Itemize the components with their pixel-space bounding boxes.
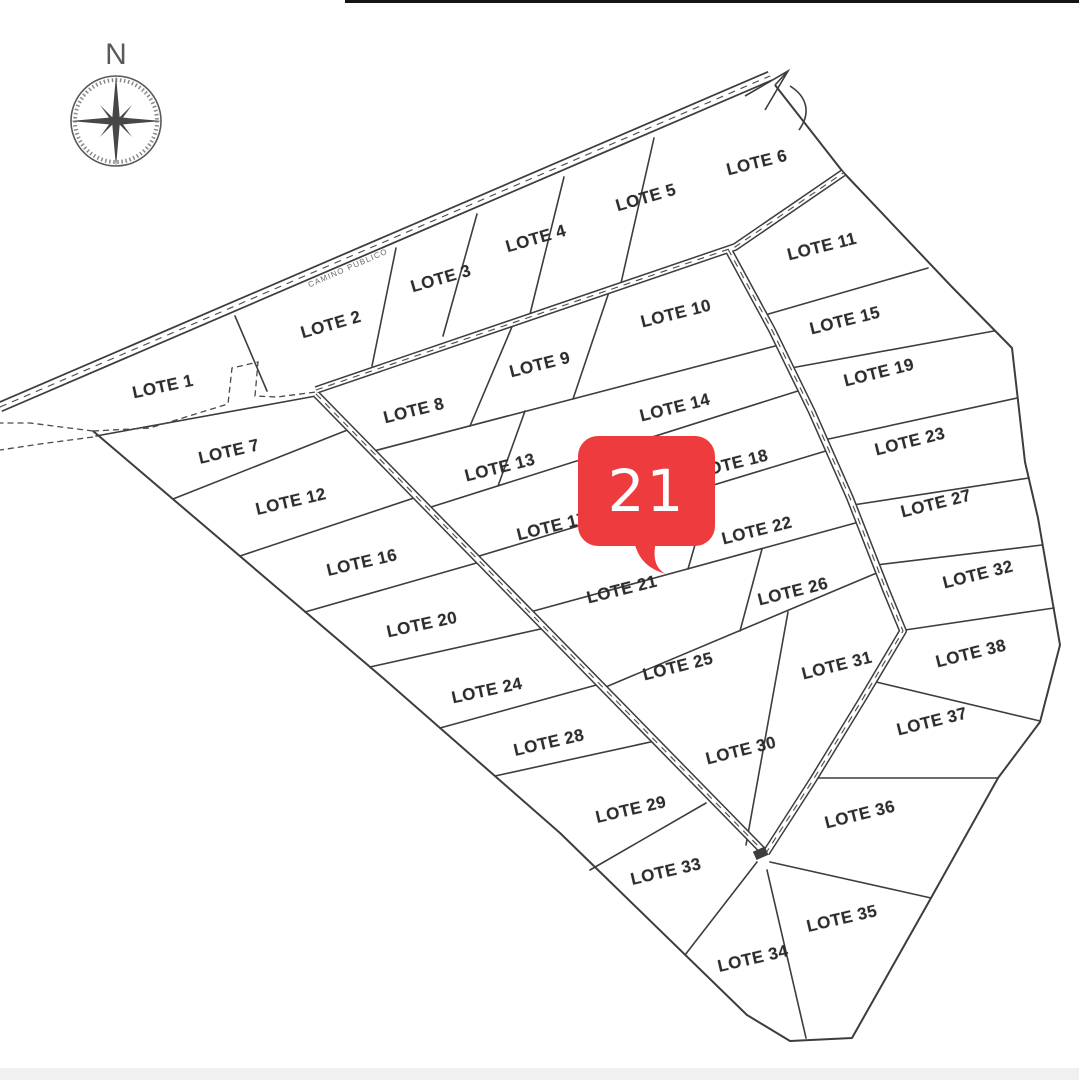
compass-north-label: N xyxy=(105,38,127,72)
bottom-strip xyxy=(0,1068,1079,1080)
top-border-line xyxy=(345,0,1079,3)
parcel-lines xyxy=(96,138,1054,1038)
lot-21-marker[interactable]: 21 xyxy=(578,436,715,546)
marker-tail xyxy=(578,541,715,583)
marker-number: 21 xyxy=(578,436,715,546)
compass-rose-icon xyxy=(70,75,162,167)
property-boundary xyxy=(93,85,1060,1041)
easement-dashed-lines xyxy=(0,362,316,450)
plat-map: N CAMINO PUBLICO LOTE 1LOTE 2LOTE 3LOTE … xyxy=(0,0,1079,1080)
